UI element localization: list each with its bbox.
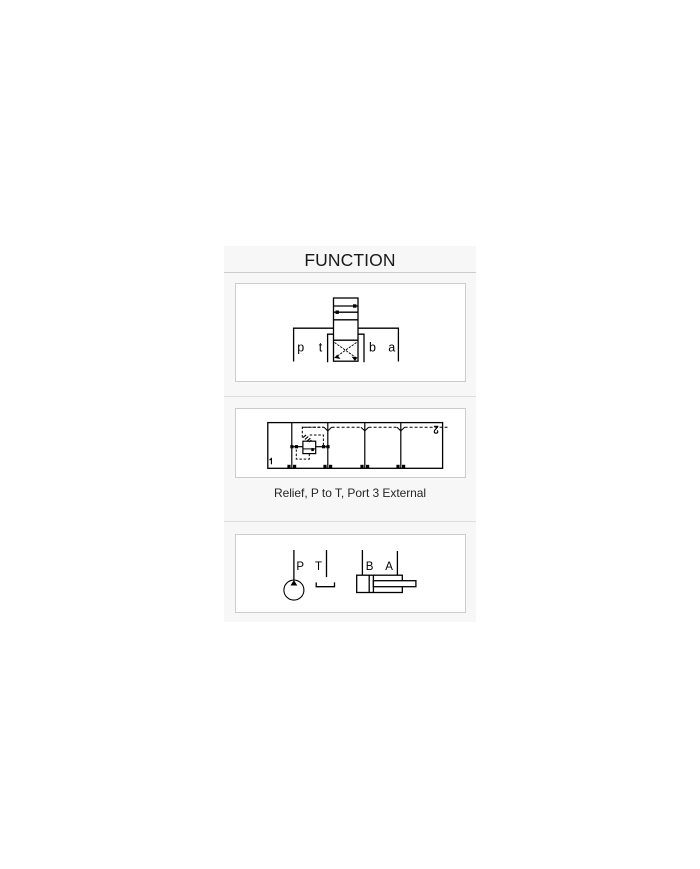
svg-text:a: a — [388, 341, 395, 355]
svg-text:P: P — [296, 561, 304, 573]
svg-text:p: p — [297, 341, 304, 355]
svg-text:t: t — [319, 341, 323, 355]
svg-text:B: B — [366, 561, 374, 573]
svg-text:A: A — [385, 561, 393, 573]
svg-text:T: T — [315, 561, 322, 573]
svg-text:b: b — [369, 341, 376, 355]
